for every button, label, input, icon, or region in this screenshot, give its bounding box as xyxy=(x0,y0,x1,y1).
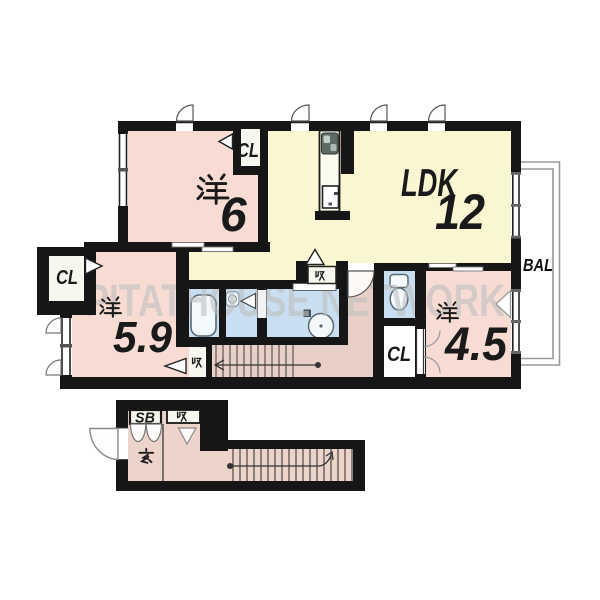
svg-text:5.9: 5.9 xyxy=(113,313,173,362)
svg-text:BAL: BAL xyxy=(523,255,553,275)
svg-text:4.5: 4.5 xyxy=(444,317,508,370)
svg-text:CL: CL xyxy=(387,343,411,366)
svg-text:CL: CL xyxy=(237,140,259,162)
svg-text:SB: SB xyxy=(135,411,155,427)
svg-text:6: 6 xyxy=(220,189,247,242)
svg-text:12: 12 xyxy=(435,184,485,240)
svg-text:CL: CL xyxy=(56,267,78,289)
